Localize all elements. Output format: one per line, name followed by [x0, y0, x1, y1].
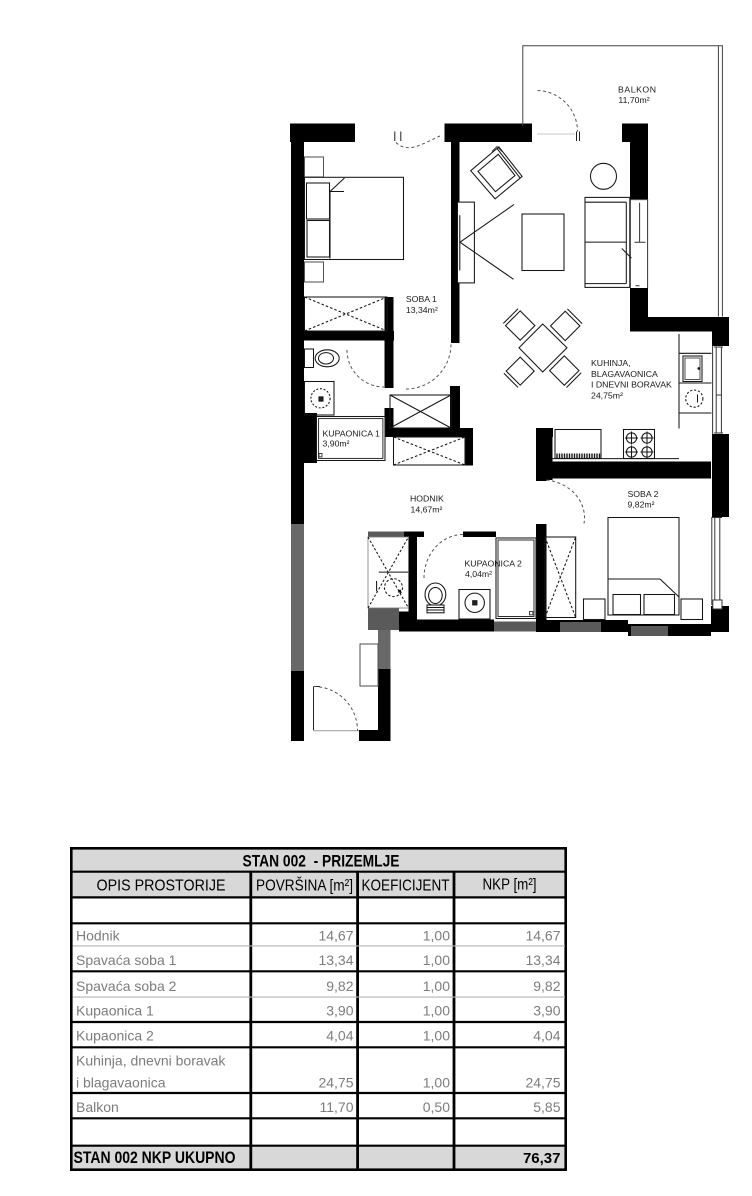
svg-text:BALKON: BALKON	[618, 85, 657, 95]
svg-text:24,75: 24,75	[525, 1075, 560, 1091]
svg-text:I DNEVNI BORAVAK: I DNEVNI BORAVAK	[591, 380, 672, 390]
svg-text:13,34m²: 13,34m²	[406, 305, 438, 315]
svg-text:1,00: 1,00	[423, 928, 450, 944]
svg-text:KUHINJA,: KUHINJA,	[591, 358, 631, 368]
svg-text:i blagavaonica: i blagavaonica	[76, 1075, 166, 1091]
svg-text:KUPAONICA 2: KUPAONICA 2	[465, 559, 522, 569]
svg-text:4,04: 4,04	[326, 1028, 353, 1044]
svg-text:14,67: 14,67	[525, 928, 560, 944]
svg-text:Kupaonica 1: Kupaonica 1	[76, 1003, 154, 1019]
svg-text:Kupaonica 2: Kupaonica 2	[76, 1028, 154, 1044]
svg-text:1,00: 1,00	[423, 1075, 450, 1091]
svg-text:SOBA 2: SOBA 2	[628, 489, 659, 499]
svg-text:STAN 002 - PRIZEMLJE: STAN 002 - PRIZEMLJE	[243, 853, 400, 871]
svg-text:14,67: 14,67	[318, 928, 353, 944]
svg-text:11,70: 11,70	[320, 1099, 354, 1115]
svg-text:KUPAONICA 1: KUPAONICA 1	[323, 428, 380, 438]
svg-text:4,04m²: 4,04m²	[465, 569, 492, 579]
svg-text:1,00: 1,00	[423, 952, 450, 968]
svg-text:1,00: 1,00	[423, 1028, 450, 1044]
svg-text:9,82: 9,82	[326, 978, 353, 994]
svg-text:HODNIK: HODNIK	[410, 494, 444, 504]
svg-text:4,04: 4,04	[533, 1028, 560, 1044]
svg-text:13,34: 13,34	[318, 952, 353, 968]
svg-text:Spavaća soba 1: Spavaća soba 1	[76, 952, 177, 968]
svg-text:Hodnik: Hodnik	[76, 928, 121, 944]
svg-text:3,90: 3,90	[533, 1003, 560, 1019]
svg-text:NKP [m²]: NKP [m²]	[483, 877, 537, 894]
svg-text:Spavaća soba 2: Spavaća soba 2	[76, 978, 177, 994]
svg-text:14,67m²: 14,67m²	[411, 505, 443, 515]
svg-text:5,85: 5,85	[533, 1099, 560, 1115]
svg-text:KOEFICIJENT: KOEFICIJENT	[362, 878, 450, 895]
svg-text:13,34: 13,34	[525, 952, 560, 968]
svg-text:Balkon: Balkon	[76, 1099, 119, 1115]
svg-text:76,37: 76,37	[523, 1150, 561, 1167]
svg-text:24,75m²: 24,75m²	[591, 391, 623, 401]
svg-text:3,90: 3,90	[326, 1003, 353, 1019]
svg-text:OPIS PROSTORIJE: OPIS PROSTORIJE	[97, 878, 226, 895]
svg-text:24,75: 24,75	[318, 1075, 353, 1091]
svg-text:11,70m²: 11,70m²	[618, 95, 649, 105]
svg-text:1,00: 1,00	[423, 978, 450, 994]
svg-text:1,00: 1,00	[423, 1003, 450, 1019]
svg-text:BLAGAVAONICA: BLAGAVAONICA	[591, 369, 658, 379]
svg-text:3,90m²: 3,90m²	[323, 439, 350, 449]
svg-text:Kuhinja, dnevni boravak: Kuhinja, dnevni boravak	[76, 1053, 226, 1069]
svg-text:0,50: 0,50	[423, 1099, 450, 1115]
svg-text:9,82: 9,82	[533, 978, 560, 994]
svg-text:9,82m²: 9,82m²	[628, 500, 655, 510]
svg-text:POVRŠINA [m²]: POVRŠINA [m²]	[256, 876, 353, 895]
svg-text:SOBA 1: SOBA 1	[406, 294, 437, 304]
svg-text:STAN 002 NKP UKUPNO: STAN 002 NKP UKUPNO	[74, 1149, 236, 1167]
